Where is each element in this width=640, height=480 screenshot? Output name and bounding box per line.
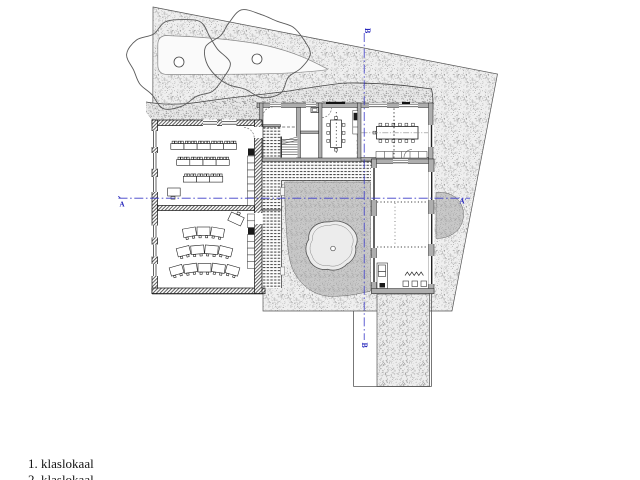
svg-text:B: B: [360, 343, 369, 349]
svg-text:A: A: [120, 201, 125, 209]
svg-text:B: B: [363, 28, 372, 34]
svg-text:A': A': [460, 198, 467, 206]
